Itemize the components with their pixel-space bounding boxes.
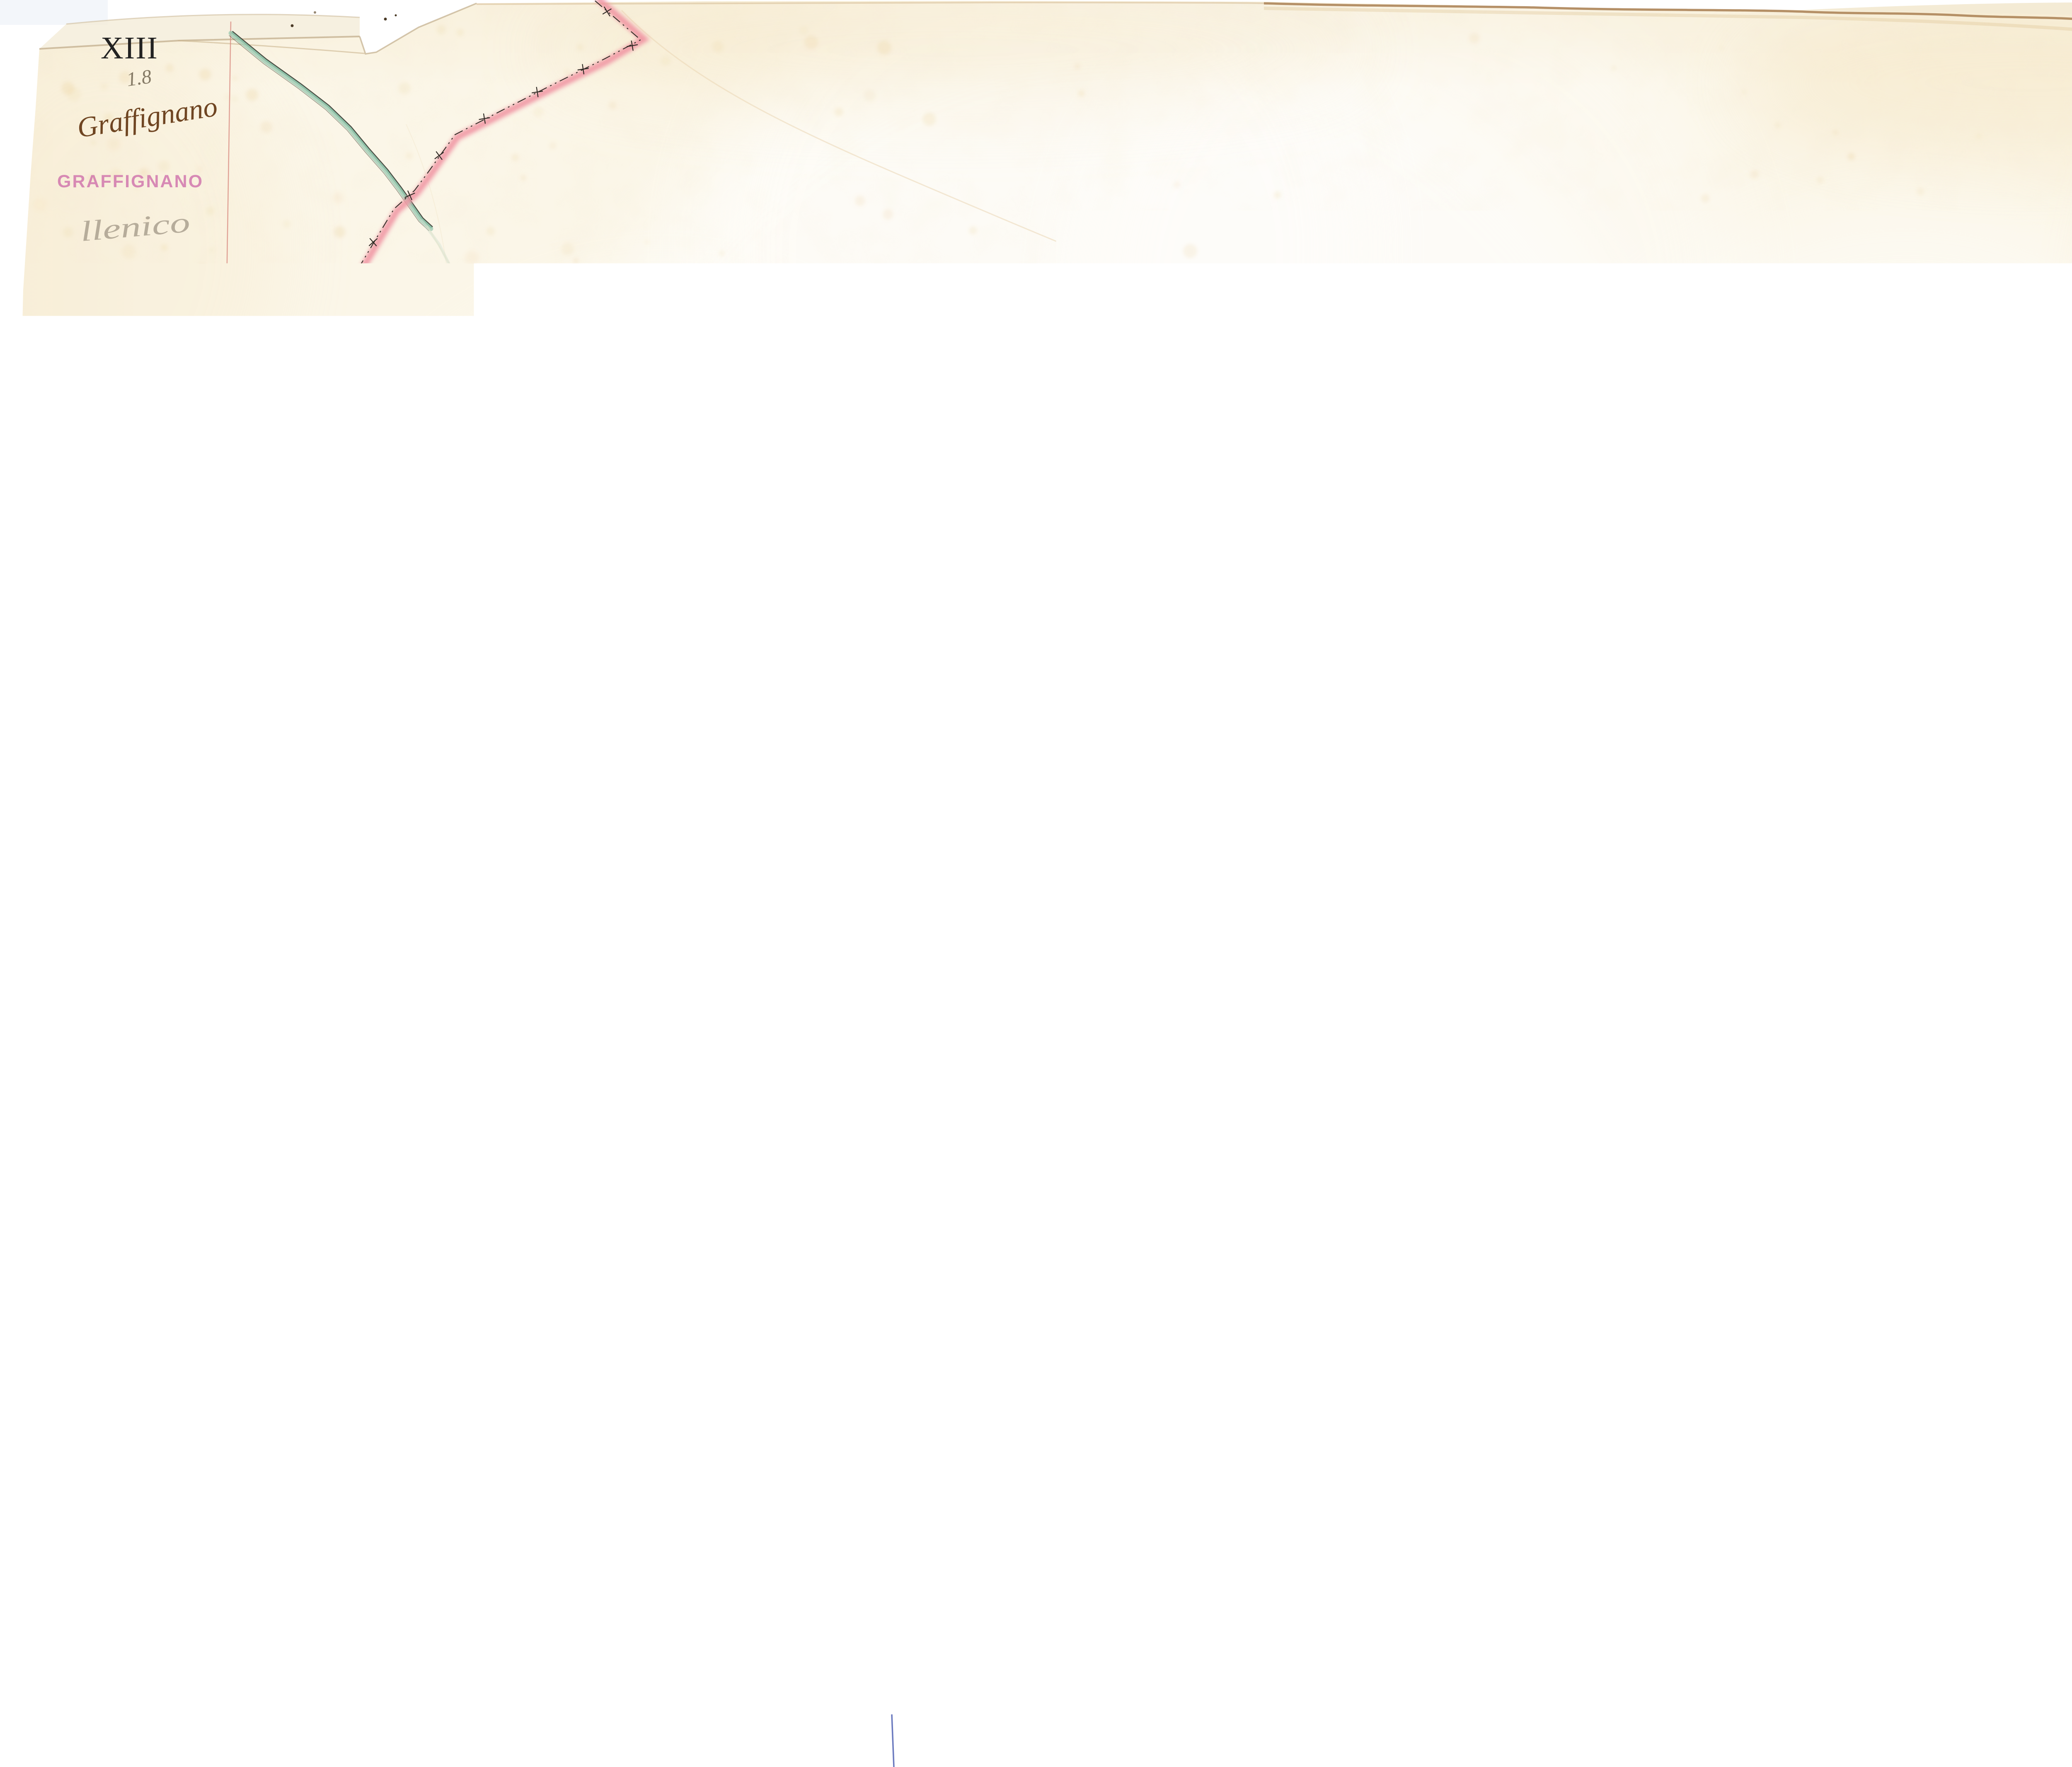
svg-text:det): det) <box>1279 1264 1300 1280</box>
svg-text:1.8: 1.8 <box>125 65 153 91</box>
svg-text:GRAFFIGNANO: GRAFFIGNANO <box>57 172 203 191</box>
svg-text:XIII: XIII <box>101 31 158 65</box>
